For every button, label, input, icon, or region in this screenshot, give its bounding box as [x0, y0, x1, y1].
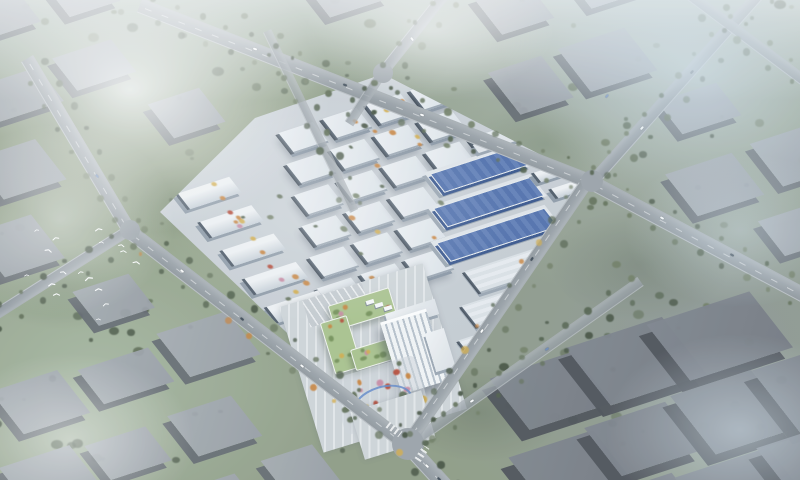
fog-patch — [300, 0, 560, 100]
haze-overlay — [0, 0, 800, 480]
fog-patch — [0, 350, 200, 480]
fog-patch — [620, 150, 800, 310]
aerial-render — [0, 0, 800, 480]
fog-patch — [120, 90, 520, 330]
fog-patch — [600, 330, 800, 480]
